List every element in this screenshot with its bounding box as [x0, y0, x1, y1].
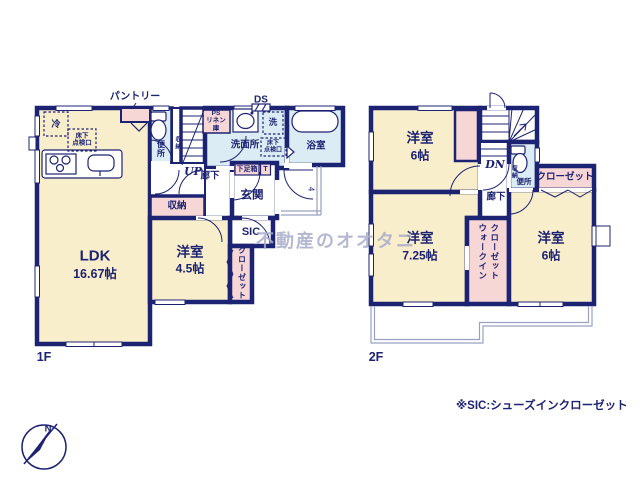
- f2-room-bedroom3: [509, 190, 594, 304]
- f2-hallway: [480, 142, 509, 218]
- f1-room-closet: [230, 246, 252, 302]
- balcony-outline: [371, 306, 592, 343]
- bathtub: [292, 111, 338, 132]
- f1-shoebox: [235, 164, 259, 175]
- footnote-sic: ※SIC:シューズインクローゼット: [456, 397, 628, 413]
- toilet-bowl: [151, 120, 166, 140]
- compass-icon: [22, 424, 66, 469]
- floor1-plan: [37, 108, 343, 344]
- floor2-plan: [371, 108, 594, 304]
- floorplan-image: パントリー DS 冷 床下 点検口 便所 収納 UP PS リネン 庫 洗面所 …: [0, 0, 640, 480]
- f2-bedroom1-closet-strip: [455, 110, 478, 161]
- f1-shoebox-t: [261, 164, 271, 175]
- f1-corridor: [205, 168, 232, 220]
- f1-room-bedroom: [150, 218, 230, 302]
- f2-room-closet: [537, 166, 594, 190]
- f2-room-wic: [467, 218, 509, 304]
- f1-pantry-box: [121, 108, 150, 122]
- f1-storage-box: [150, 196, 205, 218]
- watermark: 不動産のオオタニ: [256, 227, 416, 253]
- ds-duct: [252, 104, 270, 111]
- f1-ps-linen-box: [203, 110, 230, 133]
- kitchen-sink: [88, 155, 114, 171]
- f1-entrance-porch: [281, 166, 321, 215]
- f1-room-ldk: [37, 108, 150, 344]
